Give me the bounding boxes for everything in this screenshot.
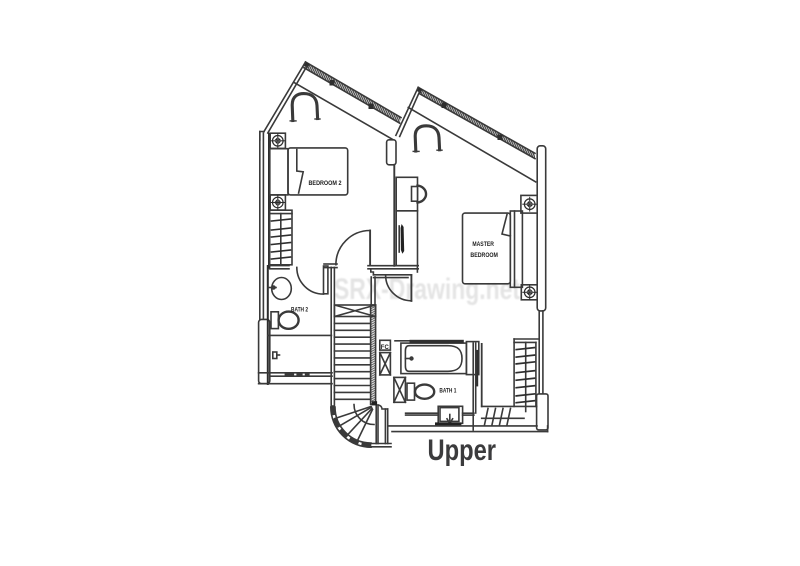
svg-text:BATH 1: BATH 1 — [439, 388, 457, 394]
svg-text:BEDROOM: BEDROOM — [470, 252, 498, 259]
svg-text:BATH 2: BATH 2 — [291, 307, 309, 313]
svg-text:MASTER: MASTER — [472, 241, 494, 248]
svg-text:FC: FC — [381, 345, 390, 351]
svg-text:BEDROOM 2: BEDROOM 2 — [309, 180, 342, 187]
svg-text:SRX-Drawing.net: SRX-Drawing.net — [334, 273, 520, 306]
svg-text:Upper: Upper — [428, 434, 497, 467]
